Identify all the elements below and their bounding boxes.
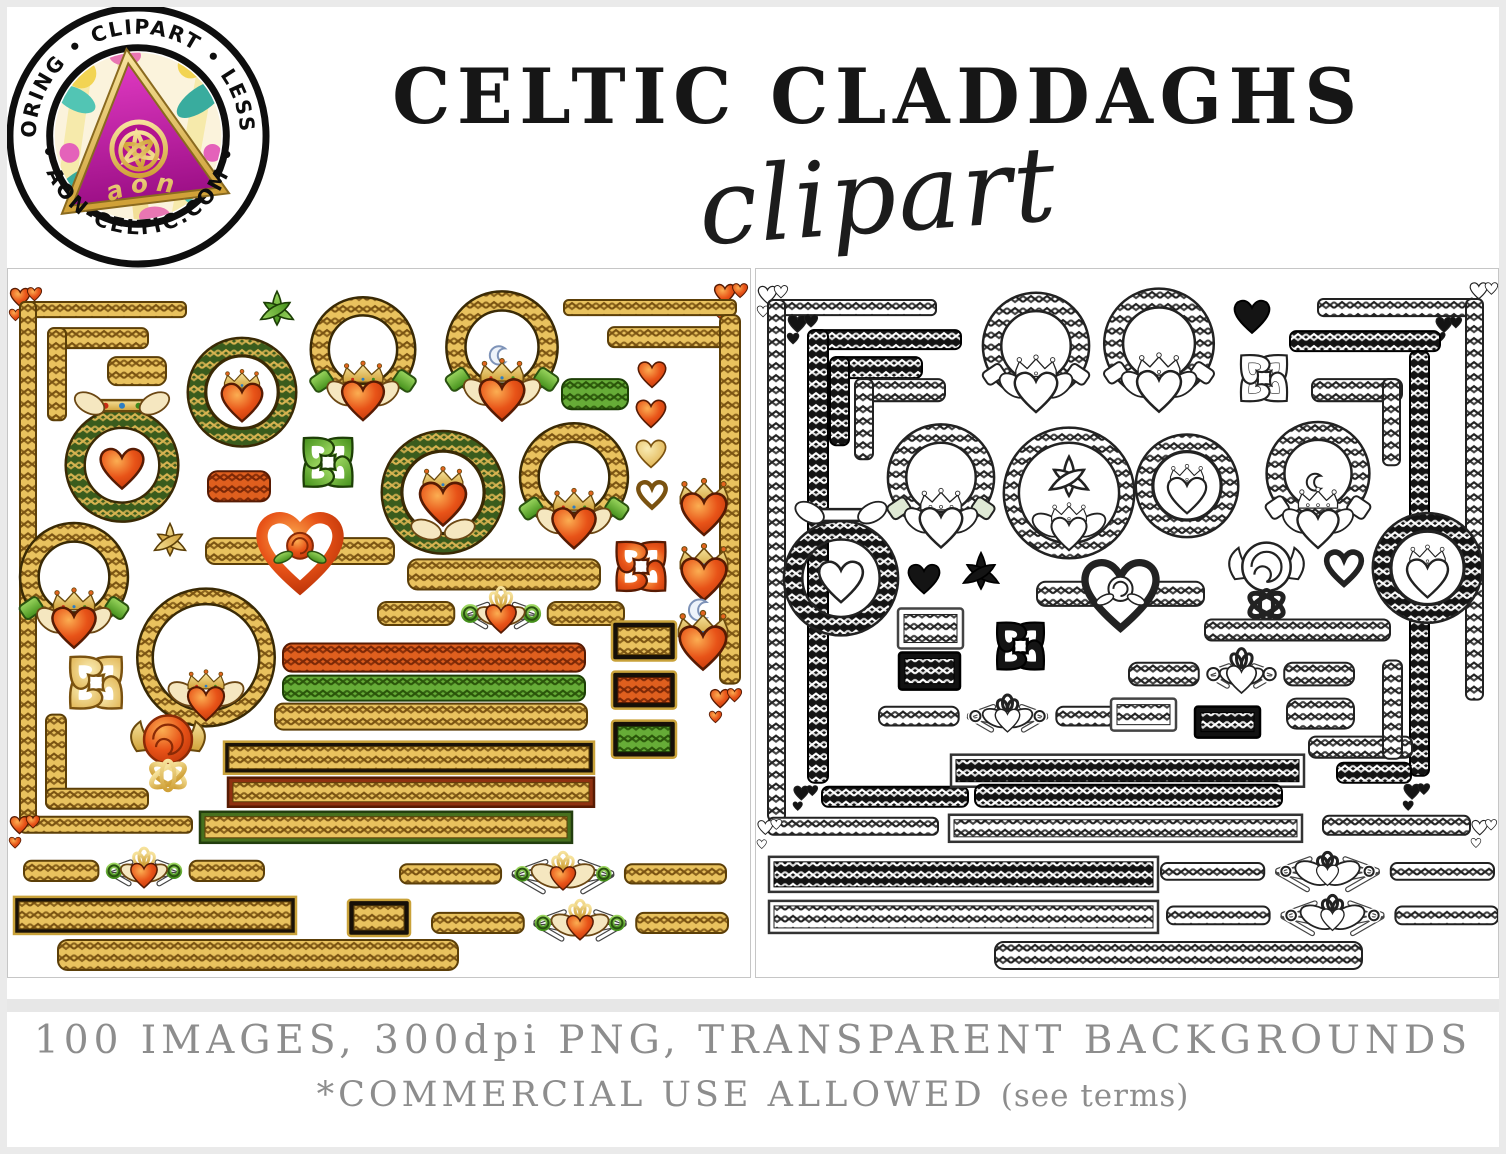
clipart-knot-border-vertical [855,379,873,459]
clipart-heart-clover [605,531,676,603]
clipart-knot-border [822,787,968,807]
clipart-knot-border [283,676,585,701]
clipart-trinity-knot [258,291,295,325]
clipart-winged-claddagh-divider [1167,895,1498,936]
clipart-rose-knot [131,716,205,792]
clipart-heart [638,362,665,387]
clipart-knot-border [562,379,628,409]
clipart-knot-border [58,940,458,970]
clipart-claddagh-medallion [1145,443,1230,528]
page: aon COLORING • CLIPART • LESSONS • AON-C… [0,0,1506,1154]
clipart-knot-border [1205,619,1390,640]
clipart-heart [1327,552,1362,584]
clipart-knot-plaque [1111,699,1176,731]
clipart-knot-border [408,559,600,589]
clipart-winged-claddagh-divider [432,900,728,942]
footer-specs: 100 IMAGES, 300dpi PNG, TRANSPARENT BACK… [0,1018,1506,1063]
clipart-knot-border [564,300,736,315]
clipart-knot-border [995,942,1362,969]
clipart-knot-border [283,644,585,672]
footer: 100 IMAGES, 300dpi PNG, TRANSPARENT BACK… [0,1018,1506,1115]
clipart-claddagh-crowning-hands [71,388,173,513]
clipart-heart-cluster [1403,784,1430,811]
aon-logo: aon COLORING • CLIPART • LESSONS • AON-C… [6,4,270,268]
clipart-knot-border [1337,763,1411,783]
clipart-framed-knot-border [228,778,594,807]
clipart-claddagh-ring [1264,431,1372,548]
gray-divider-band [7,999,1499,1012]
clipart-heart-cluster [1471,820,1497,848]
clipart-knot-plaque [612,721,676,758]
clipart-claddagh-wreath [1011,435,1126,550]
clipart-knot-border [46,789,148,809]
clipart-claddagh-medallion [392,441,494,543]
clipart-heart-cluster [793,786,818,811]
header: aon COLORING • CLIPART • LESSONS • AON-C… [0,0,1506,268]
clipart-knot-plaque [612,621,676,660]
footer-license-note: (see terms) [1001,1078,1190,1114]
clipart-knot-plaque [898,608,963,648]
clipart-knot-plaque [1195,707,1260,738]
clipart-claddagh-ring [444,301,560,421]
clipart-claddagh-ring [981,302,1090,412]
clipart-heart-clover [1230,344,1297,411]
clipart-heart [1235,301,1270,333]
footer-license-main: *COMMERCIAL USE ALLOWED [317,1075,986,1115]
clipart-rose-knot [1229,543,1304,621]
clipart-panel-lineart [755,268,1499,978]
clipart-heart [638,482,665,507]
clipart-knot-border [1287,699,1354,729]
clipart-knot-border-vertical [1466,299,1483,700]
clipart-winged-claddagh-divider [24,848,264,888]
clipart-knot-border [1290,331,1440,351]
clipart-knot-border-vertical [768,300,785,821]
clipart-heart-clover [986,612,1054,680]
clipart-framed-knot-border [769,857,1158,892]
clipart-knot-border [768,818,938,835]
clipart-knot-border [208,471,270,501]
clipart-knot-border [108,357,166,385]
clipart-claddagh-ring [1102,298,1215,412]
clipart-knot-border [768,300,936,315]
clipart-heart-clover [58,645,134,721]
clipart-heart [636,400,665,427]
clipart-knot-border [275,704,587,730]
footer-license: *COMMERCIAL USE ALLOWED (see terms) [0,1075,1506,1115]
clipart-framed-knot-border [769,901,1158,933]
clipart-heart [908,565,939,594]
clipart-knot-border [975,785,1282,807]
clipart-knot-border-vertical [1383,661,1402,759]
clipart-claddagh-medallion [197,347,287,437]
clipart-knot-border-vertical [808,330,828,783]
clipart-knot-plaque [348,900,410,936]
clipart-knot-border-vertical [48,328,66,420]
clipart-knot-border-vertical [830,357,849,445]
clipart-knot-border [608,327,738,347]
clipart-framed-knot-border [224,742,594,774]
clipart-claddagh-crowning-hands [792,497,890,626]
clipart-heart-rose-band [206,518,394,588]
clipart-knot-border [20,302,186,317]
title-block: CELTIC CLADDAGHS clipart [290,0,1466,257]
clipart-trinity-knot [152,523,187,555]
clipart-knot-border [20,817,192,833]
clipart-heart-rose-band [1037,563,1204,629]
clipart-heart [636,440,665,467]
clipart-knot-border [1318,299,1476,316]
clipart-claddagh-wreath [145,596,267,720]
clipart-claddagh-medallion [1382,522,1473,613]
clipart-winged-claddagh-divider [400,852,726,894]
clipart-knot-border [808,330,961,349]
clipart-knot-border [1323,816,1470,835]
clipart-heart-clover [292,426,363,498]
clipart-heart-cluster [709,689,741,723]
clipart-winged-claddagh-divider [378,588,624,633]
clipart-winged-claddagh-divider [1129,649,1354,693]
clipart-knot-plaque [899,653,960,690]
clipart-claddagh-ring [518,433,630,549]
clipart-panels [7,268,1499,978]
clipart-framed-knot-border [951,755,1304,787]
clipart-claddagh-ring [886,434,996,548]
clipart-claddagh-ring [309,306,418,420]
clipart-trinity-knot [961,553,1001,589]
clipart-panel-color [7,268,751,978]
clipart-knot-border-vertical [1383,379,1400,465]
clipart-framed-knot-border [200,812,572,843]
clipart-framed-knot-border [14,897,296,934]
clipart-framed-knot-border [949,815,1302,842]
clipart-knot-plaque [612,672,676,709]
clipart-winged-claddagh-divider [879,695,1136,733]
clipart-winged-claddagh-divider [1161,852,1494,892]
